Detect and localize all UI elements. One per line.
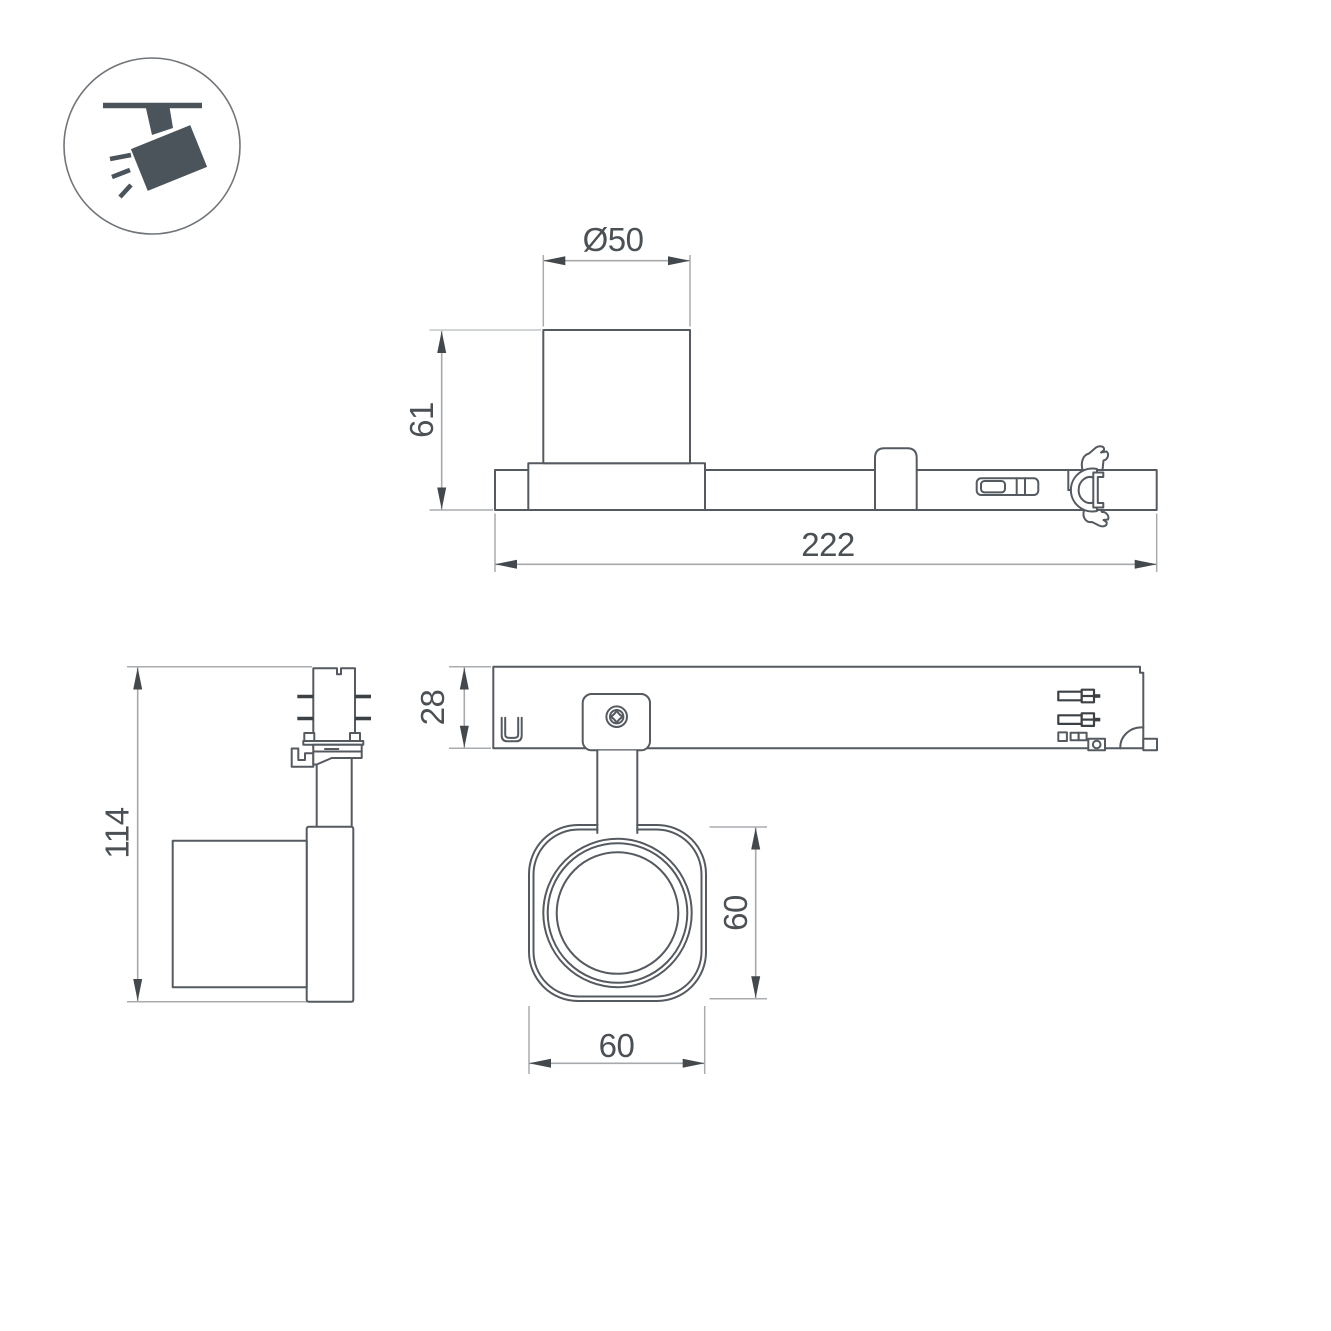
dim-label-lamp-height: 61 xyxy=(403,402,440,438)
dim-label-head-height: 60 xyxy=(717,895,754,931)
side-view: Ø50 61 222 xyxy=(403,221,1157,572)
connector-pin xyxy=(1058,715,1081,724)
end-tab xyxy=(1143,739,1157,751)
mount-bracket xyxy=(313,752,361,765)
lamp-head xyxy=(173,841,307,988)
stem-mask xyxy=(598,751,636,836)
arrowhead xyxy=(133,979,142,1001)
arrowhead xyxy=(668,256,690,265)
arrowhead xyxy=(751,828,760,850)
arrowhead xyxy=(437,488,446,510)
arrowhead xyxy=(495,560,517,569)
plan-view: 28 60 60 xyxy=(414,667,1157,1074)
spotlight-icon-badge xyxy=(64,58,240,234)
latch-flap-top xyxy=(1082,446,1108,470)
arrowhead xyxy=(543,256,565,265)
arrowhead xyxy=(751,976,760,998)
arrowhead xyxy=(460,726,469,748)
connector-pin xyxy=(1058,692,1081,701)
arrowhead xyxy=(529,1059,551,1068)
rail-tab xyxy=(875,448,917,510)
mount-hook xyxy=(292,749,314,767)
arrowhead xyxy=(133,668,142,690)
dim-label-track-length: 222 xyxy=(801,526,855,563)
arrowhead xyxy=(683,1059,705,1068)
dim-label-lamp-diameter: Ø50 xyxy=(583,221,644,258)
track-cross-section xyxy=(313,668,355,748)
dim-label-track-depth: 28 xyxy=(414,690,451,726)
arrowhead xyxy=(1135,560,1157,569)
lamp-cylinder xyxy=(543,330,690,463)
track-adapter-base xyxy=(528,463,705,510)
technical-drawing: Ø50 61 222 114 xyxy=(0,0,1331,1331)
dim-label-head-width: 60 xyxy=(599,1027,635,1064)
arrowhead xyxy=(437,331,446,353)
arrowhead xyxy=(460,668,469,690)
drawing-sheet: Ø50 61 222 114 xyxy=(0,0,1331,1331)
dim-label-fixture-height: 114 xyxy=(98,807,135,858)
lamp-body xyxy=(307,827,354,1002)
front-view: 114 xyxy=(98,667,371,1002)
latch-flap-bottom xyxy=(1083,510,1108,526)
